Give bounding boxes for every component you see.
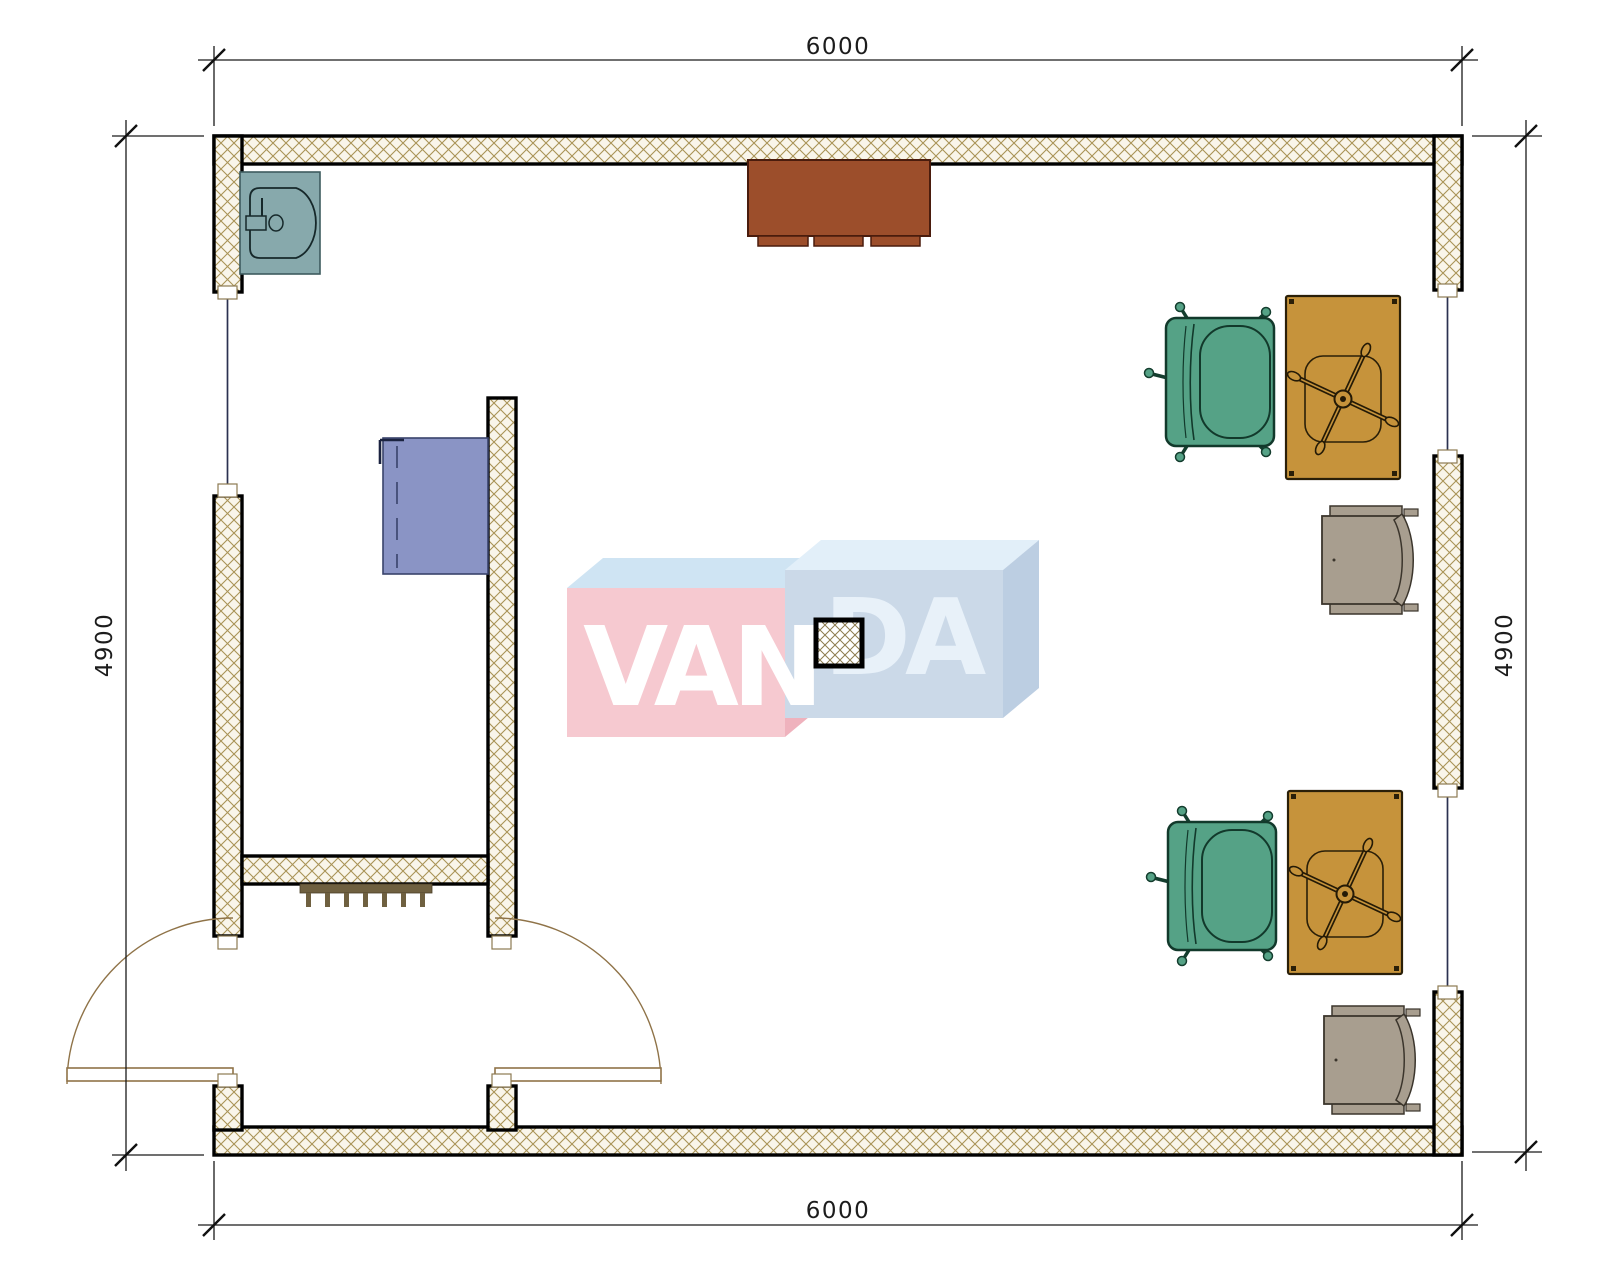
window-right-lower xyxy=(1438,784,1457,999)
left-wall-door-stub xyxy=(214,1086,242,1130)
side-chair-lower xyxy=(1324,1006,1420,1114)
dimension-right: 4900 xyxy=(1472,120,1542,1171)
sideboard-cabinet xyxy=(748,160,930,246)
dimension-left: 4900 xyxy=(92,120,204,1171)
entrance-door-left xyxy=(67,918,233,1084)
interior-wall-horizontal xyxy=(242,856,488,884)
right-wall-mid xyxy=(1434,456,1462,788)
radiator xyxy=(300,884,432,907)
vanda-watermark: VAN DA xyxy=(567,540,1039,737)
dimension-top-label: 6000 xyxy=(806,34,871,60)
floor-plan-page: VAN DA xyxy=(0,0,1600,1280)
sink xyxy=(240,172,320,274)
dimension-bottom: 6000 xyxy=(198,1161,1478,1240)
interior-wall-door-stub xyxy=(488,1086,516,1130)
right-wall-upper xyxy=(1434,136,1462,290)
dimension-right-label: 4900 xyxy=(1492,613,1518,678)
office-armchair-lower xyxy=(1147,807,1277,966)
side-chair-upper xyxy=(1322,506,1418,614)
desk-upper xyxy=(1286,296,1400,479)
window-right-upper xyxy=(1438,284,1457,463)
desk-lower xyxy=(1288,791,1402,974)
window-left xyxy=(218,286,237,497)
door-jambs xyxy=(218,936,511,1087)
office-armchair-upper xyxy=(1145,303,1275,462)
bottom-wall xyxy=(214,1127,1462,1155)
dimension-left-label: 4900 xyxy=(92,613,118,678)
entrance-door-right xyxy=(495,918,661,1084)
interior-wall-vertical xyxy=(488,398,516,936)
side-desk xyxy=(380,438,488,574)
dimension-bottom-label: 6000 xyxy=(806,1198,871,1224)
watermark-text-van: VAN xyxy=(583,603,817,731)
column xyxy=(816,620,862,666)
left-wall-upper xyxy=(214,136,242,292)
dimension-top: 6000 xyxy=(198,34,1478,126)
left-wall-mid xyxy=(214,496,242,936)
floor-plan-drawing: VAN DA xyxy=(0,0,1600,1280)
right-wall-lower xyxy=(1434,992,1462,1155)
